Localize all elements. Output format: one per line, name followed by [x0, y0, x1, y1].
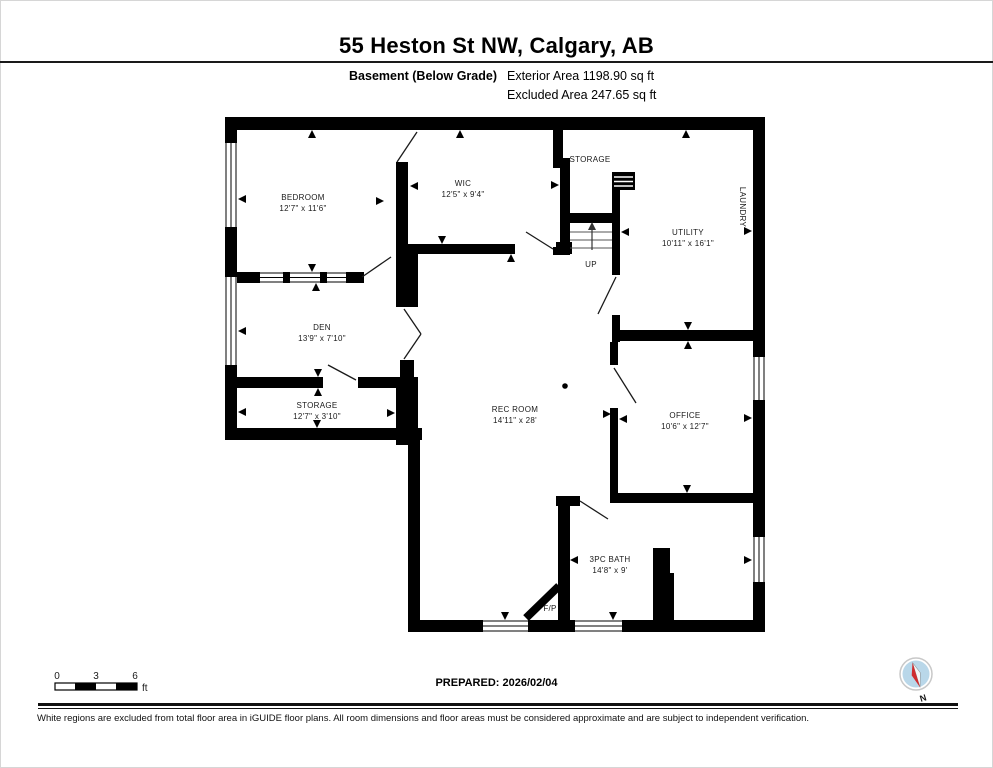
doors — [328, 132, 636, 519]
room-label-bath: 3PC BATH — [590, 555, 631, 564]
room-dims-den: 13'9" x 7'10" — [298, 334, 346, 343]
room-label-office: OFFICE — [669, 411, 700, 420]
page-title: 55 Heston St NW, Calgary, AB — [0, 33, 993, 59]
room-label-wic: WIC — [455, 179, 471, 188]
windows — [225, 143, 765, 632]
header-divider — [0, 61, 993, 63]
room-label-bedroom: BEDROOM — [281, 193, 324, 202]
prepared-date: PREPARED: 2026/02/04 — [0, 677, 993, 689]
footer-divider-thin — [38, 708, 958, 709]
floorplan-drawing: BEDROOM 12'7" x 11'6" WIC 12'5" x 9'4" S… — [0, 0, 993, 768]
up-label: UP — [585, 260, 597, 269]
up-arrow-head — [588, 222, 596, 230]
support-post — [562, 383, 568, 389]
room-label-rec-room: REC ROOM — [492, 405, 538, 414]
disclaimer-text: White regions are excluded from total fl… — [37, 713, 957, 724]
room-label-storage-lower: STORAGE — [296, 401, 337, 410]
room-dims-bedroom: 12'7" x 11'6" — [279, 204, 326, 213]
floor-label: Basement (Below Grade) — [0, 69, 497, 83]
walls — [225, 117, 765, 632]
room-label-den: DEN — [313, 323, 331, 332]
floorplan-page: 55 Heston St NW, Calgary, AB Basement (B… — [0, 0, 993, 768]
excluded-area: Excluded Area 247.65 sq ft — [507, 88, 656, 102]
room-dims-bath: 14'8" x 9' — [592, 566, 627, 575]
room-label-storage-upper: STORAGE — [569, 155, 610, 164]
footer-divider-thick — [38, 703, 958, 706]
stair-shelf — [612, 172, 635, 190]
fireplace — [526, 586, 559, 618]
room-dims-office: 10'6" x 12'7" — [661, 422, 709, 431]
exterior-area: Exterior Area 1198.90 sq ft — [507, 69, 654, 83]
room-label-utility: UTILITY — [672, 228, 704, 237]
room-dims-storage-lower: 12'7" x 3'10" — [293, 412, 341, 421]
room-dims-utility: 10'11" x 16'1" — [662, 239, 714, 248]
room-label-laundry: LAUNDRY — [738, 187, 747, 228]
stairs — [570, 222, 612, 250]
compass-north-label: N — [918, 692, 927, 703]
fireplace-label: F/P — [543, 604, 556, 613]
room-dims-wic: 12'5" x 9'4" — [441, 190, 484, 199]
room-labels: BEDROOM 12'7" x 11'6" WIC 12'5" x 9'4" S… — [279, 155, 747, 613]
room-dims-rec-room: 14'11" x 28' — [493, 416, 537, 425]
dimension-arrows — [238, 130, 752, 620]
